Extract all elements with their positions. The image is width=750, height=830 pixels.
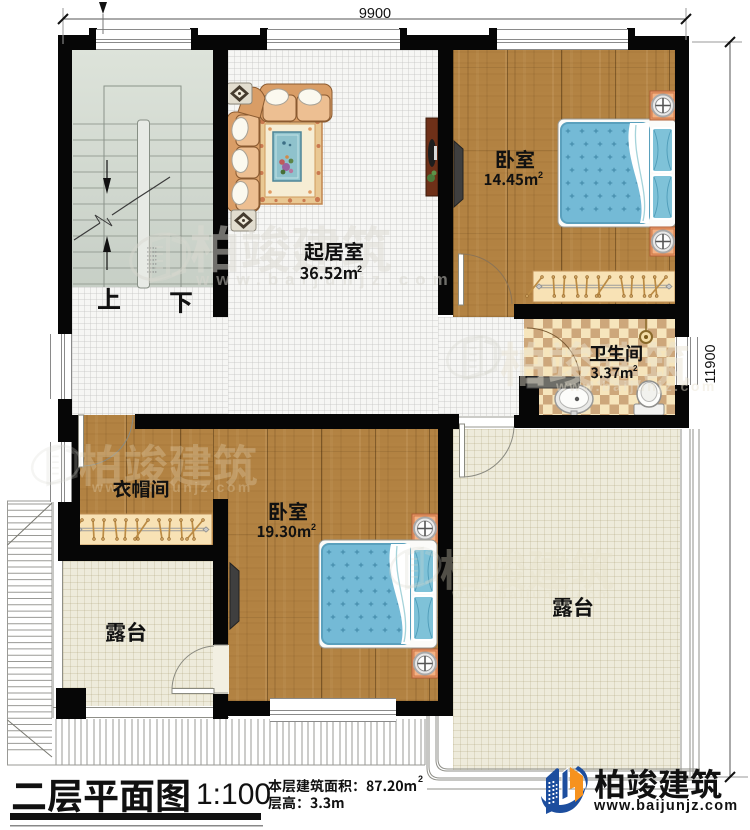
svg-text:2: 2 [418,774,423,784]
svg-text:1:100: 1:100 [196,778,271,811]
svg-text:www.baijunjz.com: www.baijunjz.com [593,798,738,814]
